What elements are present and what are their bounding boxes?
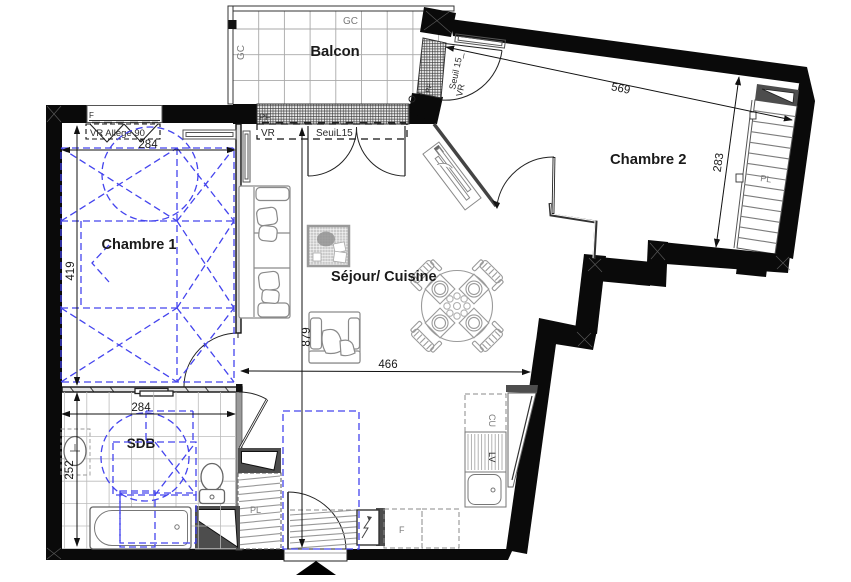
svg-text:GC: GC	[236, 45, 247, 60]
svg-text:252: 252	[64, 460, 76, 479]
svg-text:Chambre 2: Chambre 2	[610, 152, 686, 168]
svg-text:PL: PL	[760, 173, 772, 184]
svg-text:PF: PF	[259, 112, 271, 122]
svg-text:284: 284	[138, 139, 158, 151]
svg-text:VR: VR	[261, 128, 275, 139]
svg-text:Séjour/ Cuisine: Séjour/ Cuisine	[331, 269, 437, 285]
svg-text:SDB: SDB	[127, 436, 156, 451]
svg-text:Balcon: Balcon	[310, 44, 359, 60]
svg-text:PL: PL	[250, 505, 261, 515]
svg-text:LV: LV	[487, 452, 497, 462]
svg-text:CU: CU	[487, 414, 497, 427]
svg-text:466: 466	[378, 359, 397, 371]
svg-text:SeuiL15: SeuiL15	[316, 128, 353, 139]
svg-text:F: F	[89, 111, 94, 120]
svg-text:284: 284	[131, 402, 151, 414]
svg-text:879: 879	[301, 327, 313, 346]
svg-text:419: 419	[65, 261, 77, 280]
svg-text:VR Allège 90: VR Allège 90	[90, 128, 145, 139]
svg-text:F: F	[399, 525, 405, 535]
svg-text:GC: GC	[343, 16, 358, 27]
svg-text:Chambre 1: Chambre 1	[102, 237, 177, 253]
